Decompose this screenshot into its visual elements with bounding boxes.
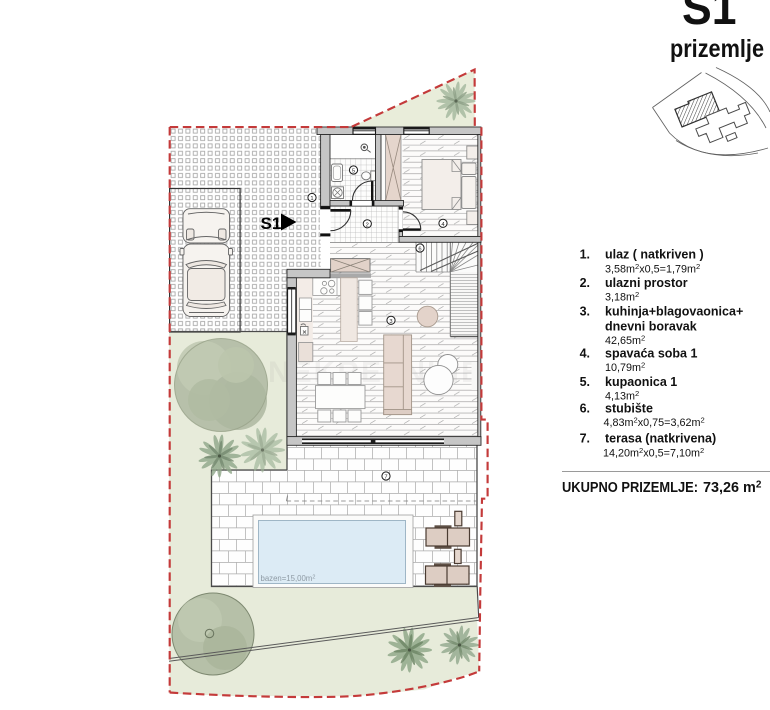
svg-text:3.: 3. xyxy=(580,305,590,319)
svg-text:bazen=15,00m2: bazen=15,00m2 xyxy=(261,574,316,583)
svg-text:73,26 m2: 73,26 m2 xyxy=(703,480,762,497)
svg-text:S1: S1 xyxy=(682,0,737,35)
svg-text:prizemlje: prizemlje xyxy=(670,35,764,63)
svg-text:1.: 1. xyxy=(580,248,590,262)
svg-text:7: 7 xyxy=(384,475,387,481)
svg-text:UKUPNO PRIZEMLJE:: UKUPNO PRIZEMLJE: xyxy=(562,480,698,496)
svg-text:ulazni prostor: ulazni prostor xyxy=(605,276,688,290)
svg-text:10,79m2: 10,79m2 xyxy=(605,360,645,374)
svg-text:14,20m2x0,5=7,10m2: 14,20m2x0,5=7,10m2 xyxy=(603,446,704,460)
svg-text:5: 5 xyxy=(352,169,355,175)
svg-text:stubište: stubište xyxy=(605,402,653,416)
svg-text:terasa (natkrivena): terasa (natkrivena) xyxy=(605,432,716,446)
svg-text:dnevni boravak: dnevni boravak xyxy=(605,320,697,334)
svg-text:42,65m2: 42,65m2 xyxy=(605,333,645,347)
svg-text:spavaća soba 1: spavaća soba 1 xyxy=(605,347,697,361)
svg-text:kuhinja+blagovaonica+: kuhinja+blagovaonica+ xyxy=(605,305,743,319)
svg-text:4.: 4. xyxy=(580,347,590,361)
svg-text:2: 2 xyxy=(366,222,369,228)
svg-text:3: 3 xyxy=(389,319,392,325)
svg-text:5.: 5. xyxy=(580,375,590,389)
svg-text:2.: 2. xyxy=(580,276,590,290)
svg-text:6: 6 xyxy=(418,247,421,253)
svg-text:1: 1 xyxy=(310,196,313,202)
svg-text:7.: 7. xyxy=(580,432,590,446)
svg-text:3,18m2: 3,18m2 xyxy=(605,290,639,304)
svg-text:kupaonica 1: kupaonica 1 xyxy=(605,375,677,389)
svg-text:6.: 6. xyxy=(580,402,590,416)
svg-text:ulaz ( natkriven ): ulaz ( natkriven ) xyxy=(605,248,704,262)
svg-text:S1: S1 xyxy=(261,214,282,233)
svg-text:3,58m2x0,5=1,79m2: 3,58m2x0,5=1,79m2 xyxy=(605,262,700,276)
svg-text:4,13m2: 4,13m2 xyxy=(605,389,639,403)
svg-text:4,83m2x0,75=3,62m2: 4,83m2x0,75=3,62m2 xyxy=(604,415,705,429)
